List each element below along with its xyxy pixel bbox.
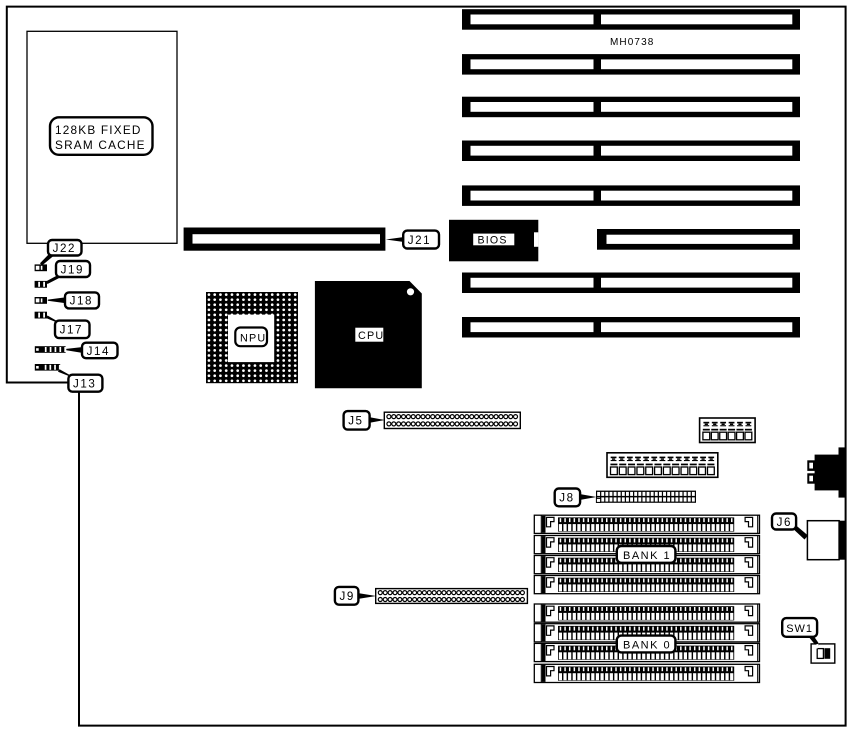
svg-text:MH0738: MH0738 [610, 37, 654, 48]
svg-text:SRAM CACHE: SRAM CACHE [55, 138, 146, 152]
svg-text:J17: J17 [60, 324, 83, 337]
svg-text:J6: J6 [777, 516, 792, 529]
svg-text:128KB FIXED: 128KB FIXED [55, 123, 142, 137]
svg-text:J9: J9 [340, 590, 355, 603]
svg-text:J18: J18 [70, 295, 93, 308]
svg-text:CPU: CPU [358, 330, 384, 342]
svg-text:SW1: SW1 [786, 623, 813, 635]
svg-text:J13: J13 [73, 378, 96, 391]
svg-text:J21: J21 [408, 234, 431, 247]
svg-text:BIOS: BIOS [478, 235, 508, 247]
svg-text:J5: J5 [348, 415, 363, 428]
svg-text:J22: J22 [53, 242, 76, 255]
svg-text:J14: J14 [87, 345, 110, 358]
svg-text:BANK 0: BANK 0 [623, 640, 671, 652]
svg-text:NPU: NPU [240, 333, 266, 345]
svg-text:J19: J19 [61, 263, 84, 276]
svg-text:J8: J8 [559, 492, 574, 505]
svg-text:BANK 1: BANK 1 [623, 550, 671, 562]
